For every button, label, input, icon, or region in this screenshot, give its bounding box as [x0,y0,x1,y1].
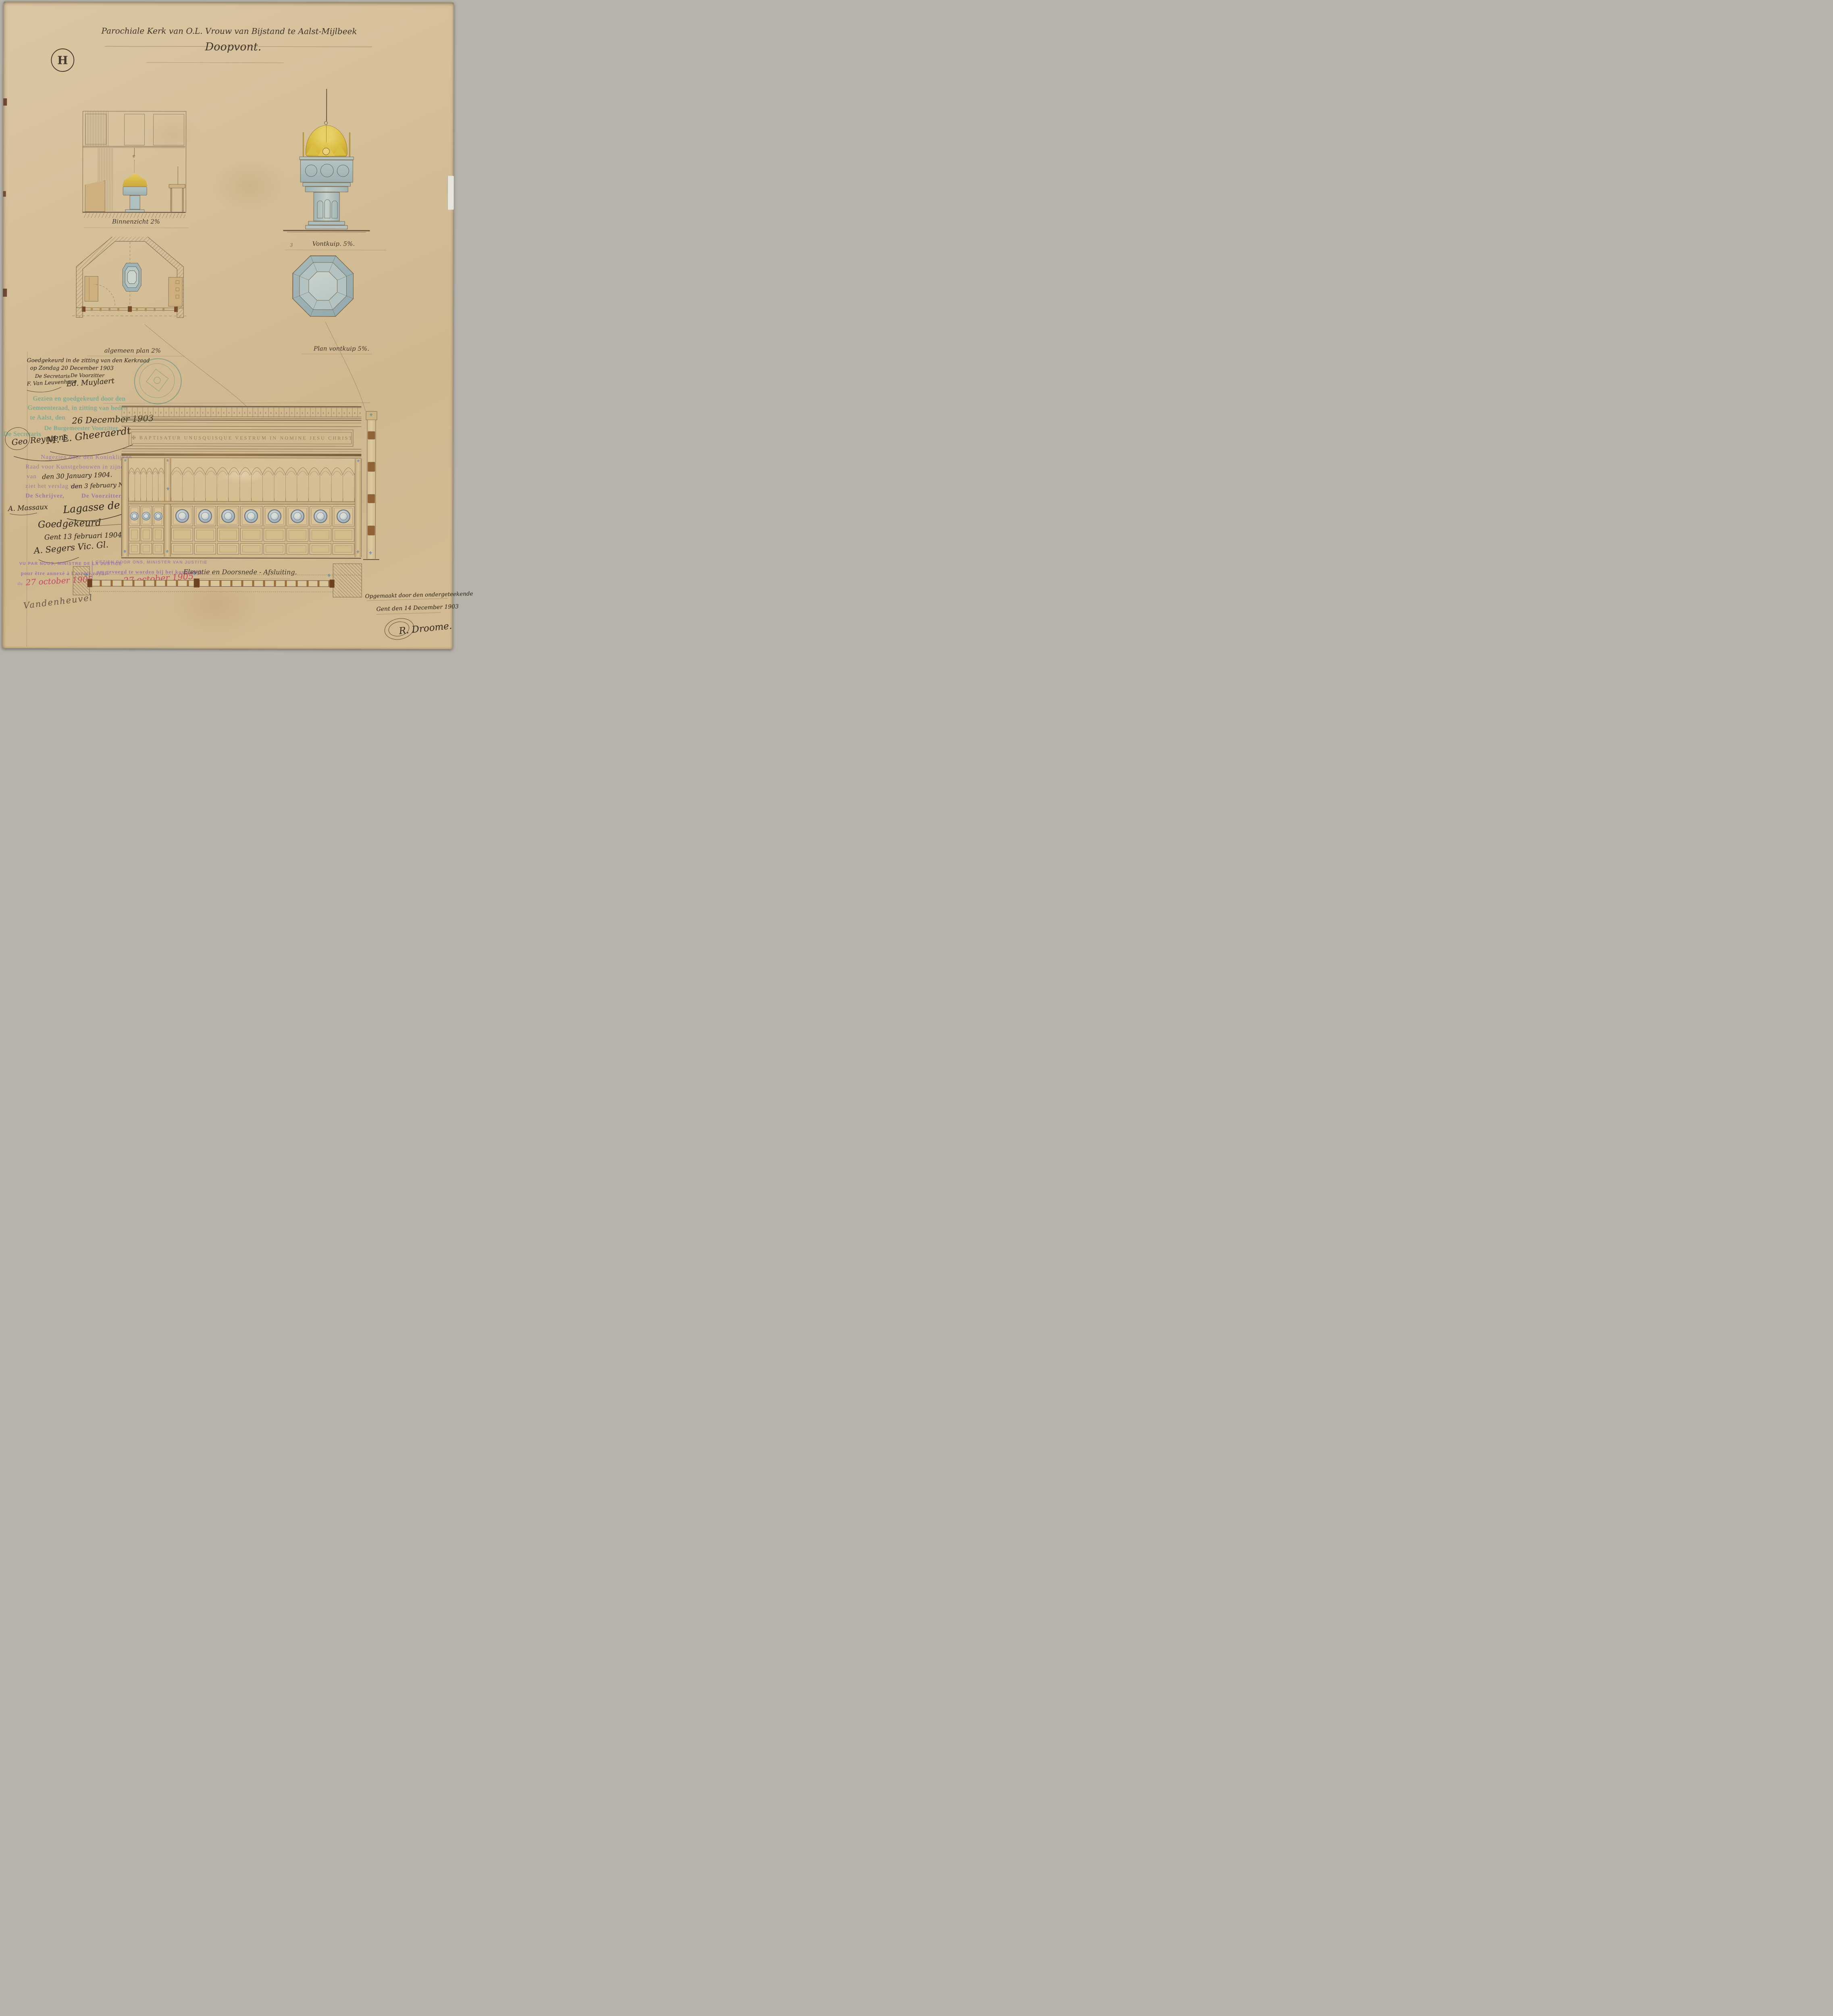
medallion-panel [287,506,308,526]
wood-panel [310,543,331,554]
medallion-panel [217,506,239,526]
wood-panel [171,528,193,541]
timber-cut [368,462,375,472]
medallion [337,510,350,523]
wood-panel [333,544,354,555]
medallion [244,509,258,523]
gemeenteraad-line3: te Aalst, den [30,414,65,421]
gemeenteraad-line1: Gezien en goedgekeurd door den [33,395,126,402]
wood-panel [171,543,193,554]
edge-mark [3,191,6,197]
edge-mark [3,289,7,297]
section-profile-strip: ⚜ ⚜ [362,410,381,560]
medallion [175,509,189,523]
ministry-fr-line3: du [18,581,23,586]
kraad-line3-pref: van [27,473,37,480]
section-ground [363,559,379,560]
medallion [221,509,235,523]
leaf-frieze [122,407,362,417]
hinge-mark-icon: ⚜ [84,573,89,577]
section-body [367,420,376,559]
wood-panel [129,543,140,554]
wood-panel [287,528,308,541]
gate-post-right [330,580,335,588]
fleur-de-lis-icon: ⚜ [123,549,127,554]
wood-panel [141,543,152,554]
fence-plan-rail [89,580,333,587]
rail-band [129,501,355,504]
plain-panels-left-1 [129,527,164,541]
plan-dash-top [73,574,361,575]
wood-panel [217,543,239,554]
medallion [291,509,304,523]
arcade-right-bay [171,464,355,502]
pilaster-left: ⚜ ⚜ [122,458,129,556]
wood-panel [141,528,152,541]
wood-panel [194,543,216,554]
pilaster-mid: ⚜ ⚜ ⚜ [164,458,171,557]
fleur-de-lis-icon: ⚜ [356,550,360,554]
medallion-panel [310,506,331,526]
fleur-de-lis-icon: ⚜ [369,413,373,417]
medallion [198,509,212,523]
cornice-d [121,426,361,427]
gemeenteraad-line2: Gemeenteraad, in zitting van heden [28,404,127,412]
fleur-de-lis-icon: ⚜ [368,551,373,556]
wood-panel [152,543,163,554]
wood-panel [263,543,285,554]
wood-panel [310,528,331,541]
cornice-e [121,448,361,449]
medallion-panel [263,506,285,526]
timber-cut [368,431,375,439]
dark-band [121,453,361,456]
screen-body: ⚜ ⚜ ⚜ ⚜ ⚜ ⚜ ⚜ [121,458,362,557]
hinge-mark-icon: ⚜ [327,573,331,578]
fleur-de-lis-icon: ⚜ [165,550,169,554]
medallion-panel [171,506,193,526]
plan-dash-bottom [89,591,333,592]
medallion [314,509,327,523]
plain-panels-right-1 [171,528,354,542]
wood-panel [194,528,216,541]
wood-panel [333,528,354,542]
hinge-fleur-icon: ⚜ [166,487,170,492]
kraad-clerk-label: De Schrijver, [25,493,64,500]
plain-panels-left-2 [129,543,164,554]
wood-panel [240,543,262,554]
torn-paper-patch [447,176,454,210]
medallion-panel [194,506,216,526]
wood-panel [286,543,308,554]
frieze-inscription: ✠ BAPTISATUR UNUSQUISQUE VESTRUM IN NOMI… [131,432,351,444]
fleur-de-lis-icon: ⚜ [123,459,127,463]
medallion [268,509,281,523]
kraad-line1: Nagezien door den Koninklijken [41,454,132,461]
medallion [142,512,150,520]
wood-panel [217,528,239,541]
medallion-panel [141,506,152,526]
medallion-panels-left [129,506,164,526]
bisdom-line1: Goedgekeurd [38,518,102,530]
wood-panel [263,528,285,541]
medallion-panel [129,506,140,526]
fleur-de-lis-icon: ⚜ [166,459,169,463]
medallion-panels-right [171,506,354,527]
pilaster-right: ⚜ ⚜ [355,459,362,557]
timber-cut [368,526,375,535]
church-council-seal [131,355,185,407]
scanned-sheet: H Parochiale Kerk van O.L. Vrouw van Bij… [0,0,458,652]
hinge-mark-icon: ⚜ [192,571,197,576]
medallion-panel [240,506,262,526]
medallion [130,512,139,520]
medallion [154,512,162,520]
gate-post-left [87,579,92,587]
arcade-left-bay [129,464,164,501]
cornice-c [121,422,361,423]
elev-ground-line [121,557,361,558]
cornice-b [122,419,362,421]
kerkraad-line2: op Zondag 20 December 1903 [30,365,114,371]
inscription-plaque-inner: ✠ BAPTISATUR UNUSQUISQUE VESTRUM IN NOMI… [131,431,352,444]
drawing-paper: H Parochiale Kerk van O.L. Vrouw van Bij… [2,2,454,649]
cornice-a [122,418,362,419]
timber-cut [368,494,375,503]
plain-panels-right-2 [171,543,354,555]
cornice-f [121,451,361,452]
fleur-de-lis-icon: ⚜ [356,460,360,464]
wood-panel [129,527,140,541]
enclosure-elevation-drawing: ✠ BAPTISATUR UNUSQUISQUE VESTRUM IN NOMI… [121,405,362,561]
masonry-pier-right [333,564,362,598]
edge-mark [3,98,7,106]
kraad-chairman-label: De Voorzitter, [81,493,123,500]
gate-post-mid [194,579,200,587]
inscription-plaque: ✠ BAPTISATUR UNUSQUISQUE VESTRUM IN NOMI… [129,429,353,446]
medallion-panel [153,506,164,526]
wood-panel [240,528,262,541]
wood-panel [153,528,164,541]
kerkraad-secretary-label: De Secretaris [35,373,70,379]
enclosure-plan-strip: ⚜ ⚜ ⚜ [73,561,361,600]
medallion-panel [333,506,354,527]
